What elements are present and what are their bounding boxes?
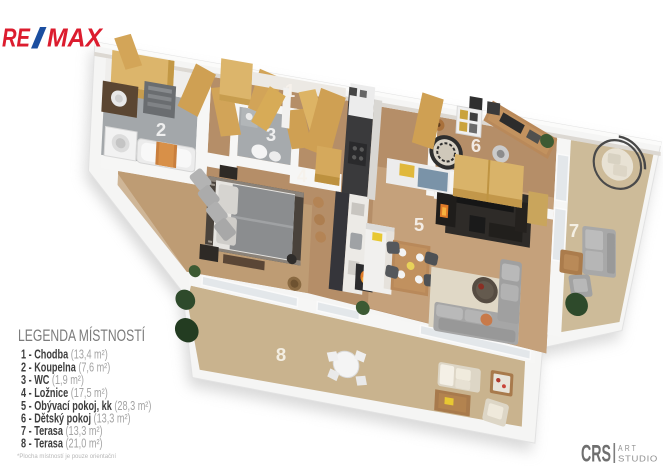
svg-text:CRS: CRS <box>581 441 611 468</box>
svg-text:6: 6 <box>471 135 481 156</box>
svg-text:2 - Koupelna (7,6 m²): 2 - Koupelna (7,6 m²) <box>21 361 110 375</box>
svg-text:5: 5 <box>414 214 424 235</box>
svg-text:1 - Chodba (13,4 m²): 1 - Chodba (13,4 m²) <box>21 348 108 362</box>
svg-text:6 - Dětský pokoj (13,3 m²): 6 - Dětský pokoj (13,3 m²) <box>21 412 131 426</box>
svg-text:MAX: MAX <box>47 25 104 53</box>
svg-text:2: 2 <box>156 119 166 140</box>
svg-text:3 - WC (1,9 m²): 3 - WC (1,9 m²) <box>21 374 84 388</box>
svg-text:*Plocha místností je pouze ori: *Plocha místností je pouze orientační <box>17 454 116 460</box>
svg-text:ART: ART <box>618 443 638 453</box>
svg-text:7: 7 <box>569 220 579 241</box>
svg-text:4 - Ložnice (17,5 m²): 4 - Ložnice (17,5 m²) <box>21 386 108 400</box>
svg-text:8 - Terasa (21,0 m²): 8 - Terasa (21,0 m²) <box>21 437 103 451</box>
svg-text:3: 3 <box>266 124 276 145</box>
svg-text:1: 1 <box>285 80 295 101</box>
svg-text:RE: RE <box>2 25 31 53</box>
svg-text:STUDIO: STUDIO <box>618 454 658 464</box>
svg-text:8: 8 <box>276 344 286 365</box>
svg-text:4: 4 <box>297 165 308 186</box>
svg-text:LEGENDA MÍSTNOSTÍ: LEGENDA MÍSTNOSTÍ <box>18 326 145 345</box>
